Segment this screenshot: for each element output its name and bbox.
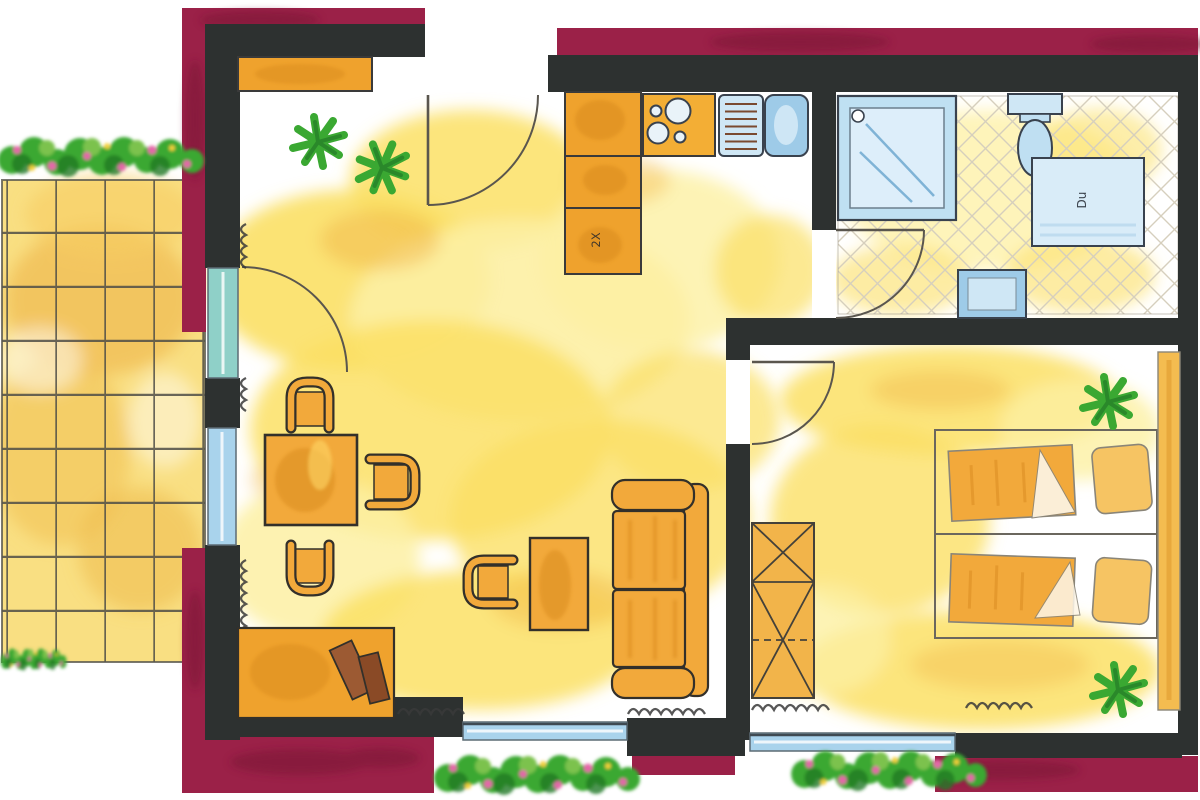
toilet-tank bbox=[1008, 94, 1062, 114]
wall-left-pillar bbox=[205, 378, 240, 428]
floor-plan: 2X Du bbox=[0, 0, 1200, 800]
wall-kitchen-bath-divider bbox=[812, 92, 836, 230]
wall-bath-bedroom-divider bbox=[726, 318, 1180, 345]
tv-board bbox=[238, 628, 394, 718]
wardrobe bbox=[752, 523, 814, 698]
kitchen-unit-label: 2X bbox=[589, 232, 603, 247]
wall-top bbox=[548, 55, 1182, 92]
sofa-armrest-bottom bbox=[612, 668, 694, 698]
bed-2 bbox=[949, 554, 1152, 626]
bed-1-pillow bbox=[1091, 444, 1153, 515]
shower-drain bbox=[852, 110, 864, 122]
drainboard-ridges bbox=[725, 104, 757, 149]
sofa-armrest-top bbox=[612, 480, 694, 510]
sofa bbox=[612, 480, 708, 698]
wall-bottom-right bbox=[955, 733, 1182, 758]
bed-2-pillow bbox=[1092, 557, 1152, 625]
wall-maroon-bottom-center bbox=[632, 755, 735, 775]
wall-bottom-pillar bbox=[627, 718, 745, 756]
terrace-tile-grid bbox=[2, 180, 205, 662]
wall-living-bedroom bbox=[726, 444, 750, 740]
washbasin bbox=[958, 270, 1026, 318]
wall-left-upper bbox=[205, 24, 240, 268]
stove-burner-large-1 bbox=[666, 99, 691, 124]
sink-basin bbox=[774, 105, 798, 145]
wall-bedroom-nib bbox=[726, 345, 750, 360]
stove-burner-small-1 bbox=[651, 106, 662, 117]
sofa-backrest bbox=[684, 484, 708, 696]
shower-tray-label: Du bbox=[1075, 192, 1089, 209]
dining-chair-right bbox=[370, 459, 415, 505]
bed-1 bbox=[948, 444, 1153, 522]
wall-right bbox=[1178, 55, 1198, 755]
coffee-table bbox=[530, 538, 588, 630]
terrace bbox=[0, 173, 205, 662]
floor-plan-canvas: 2X Du bbox=[0, 0, 1200, 800]
stove-burner-large-2 bbox=[648, 123, 669, 144]
stove-burner-small-2 bbox=[675, 132, 686, 143]
